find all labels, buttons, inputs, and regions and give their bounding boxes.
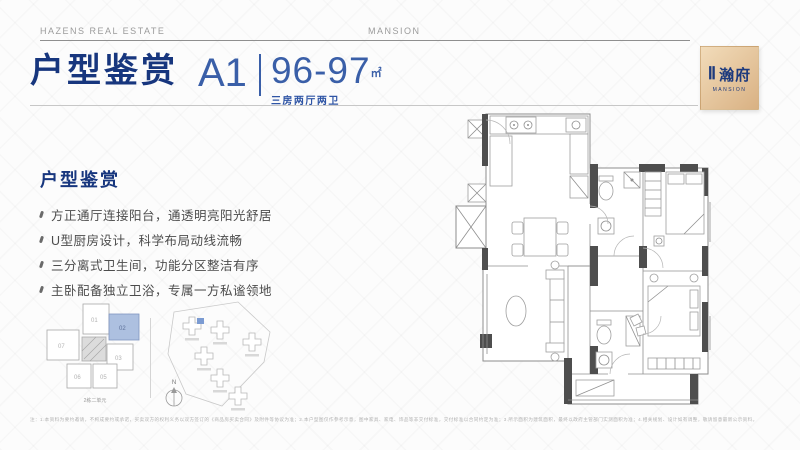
logo-subtitle: MANSION <box>713 87 747 93</box>
feature-item: U型厨房设计，科学布局动线流畅 <box>40 229 340 254</box>
floorplan <box>428 106 713 421</box>
page-title: 户型鉴赏 <box>30 54 178 88</box>
washbasin-icon <box>596 352 612 368</box>
title-divider <box>259 54 261 96</box>
balcony <box>576 380 614 396</box>
kitchen-counter <box>570 134 588 174</box>
bed-icon <box>666 172 704 234</box>
logo-name: 瀚府 <box>719 64 751 85</box>
area-block: 96-97㎡ 三房两厅两卫 <box>271 54 382 107</box>
washbasin-icon <box>598 218 614 234</box>
keyplan-label: 05 <box>100 375 107 381</box>
stove-icon <box>506 117 536 133</box>
kitchen-counter <box>490 136 512 186</box>
brand-center-label: MANSION <box>368 26 421 36</box>
bullet-icon <box>39 236 44 244</box>
brochure-page: HAZENS REAL ESTATE MANSION Ⅱ 瀚府 MANSION … <box>0 0 800 450</box>
kitchen-sink-icon <box>566 118 586 132</box>
bullet-icon <box>39 261 44 269</box>
feature-text: U型厨房设计，科学布局动线流畅 <box>51 229 243 254</box>
siteplan-buildings <box>183 317 261 411</box>
siteplan-diagram: N <box>158 296 278 420</box>
keyplan-core <box>82 337 106 361</box>
unit-type-label: A1 <box>198 54 247 92</box>
features-section: 户型鉴赏 方正通厅连接阳台，通透明亮阳光舒居 U型厨房设计，科学布局动线流畅 三… <box>40 166 340 304</box>
keyplan-label: 01 <box>91 318 98 324</box>
keyplan-label: 06 <box>74 375 81 381</box>
area-value: 96-97 <box>271 50 371 91</box>
keyplan-label: 02 <box>119 326 126 332</box>
compass-icon: N <box>166 380 182 406</box>
brand-left-label: HAZENS REAL ESTATE <box>40 26 165 36</box>
keyplan-caption: 2栋二单元 <box>84 397 107 404</box>
feature-text: 方正通厅连接阳台，通透明亮阳光舒居 <box>51 204 272 229</box>
shower-icon <box>624 172 640 188</box>
feature-text: 三分离式卫生间，功能分区整洁有序 <box>51 254 259 279</box>
disclaimer-text: 注：1.本资料为要约邀请，不构成要约或承诺，买卖双方的权利义务以双方签订的《商品… <box>30 417 775 423</box>
nightstand-icon <box>690 274 698 282</box>
features-heading: 户型鉴赏 <box>40 166 340 192</box>
keyplan-label: 03 <box>115 356 122 362</box>
coffee-table-icon <box>506 296 526 326</box>
plant-icon <box>551 353 559 361</box>
keyplan-label: 07 <box>58 344 65 350</box>
features-list: 方正通厅连接阳台，通透明亮阳光舒居 U型厨房设计，科学布局动线流畅 三分离式卫生… <box>40 204 340 304</box>
mansion-logo: Ⅱ 瀚府 MANSION <box>700 46 759 110</box>
feature-item: 方正通厅连接阳台，通透明亮阳光舒居 <box>40 204 340 229</box>
plant-icon <box>551 261 559 269</box>
plans-separator <box>150 318 151 398</box>
siteplan-highlight-marker <box>197 318 204 324</box>
wardrobe-icon <box>648 358 700 369</box>
feature-item: 三分离式卫生间，功能分区整洁有序 <box>40 254 340 279</box>
header-divider <box>40 40 690 41</box>
toilet-icon <box>599 176 613 200</box>
nightstand-icon <box>650 274 658 282</box>
area-unit: ㎡ <box>371 68 382 80</box>
nightstand-icon <box>654 236 664 246</box>
bullet-icon <box>39 286 44 294</box>
compass-north-label: N <box>172 380 176 386</box>
toilet-icon <box>597 320 611 344</box>
bullet-icon <box>39 211 44 219</box>
title-block: 户型鉴赏 A1 96-97㎡ 三房两厅两卫 <box>30 54 382 107</box>
wardrobe-icon <box>645 172 661 216</box>
logo-numeral-icon: Ⅱ <box>708 64 716 84</box>
keyplan-diagram: 01 02 03 07 06 05 2栋二单元 <box>45 300 145 408</box>
